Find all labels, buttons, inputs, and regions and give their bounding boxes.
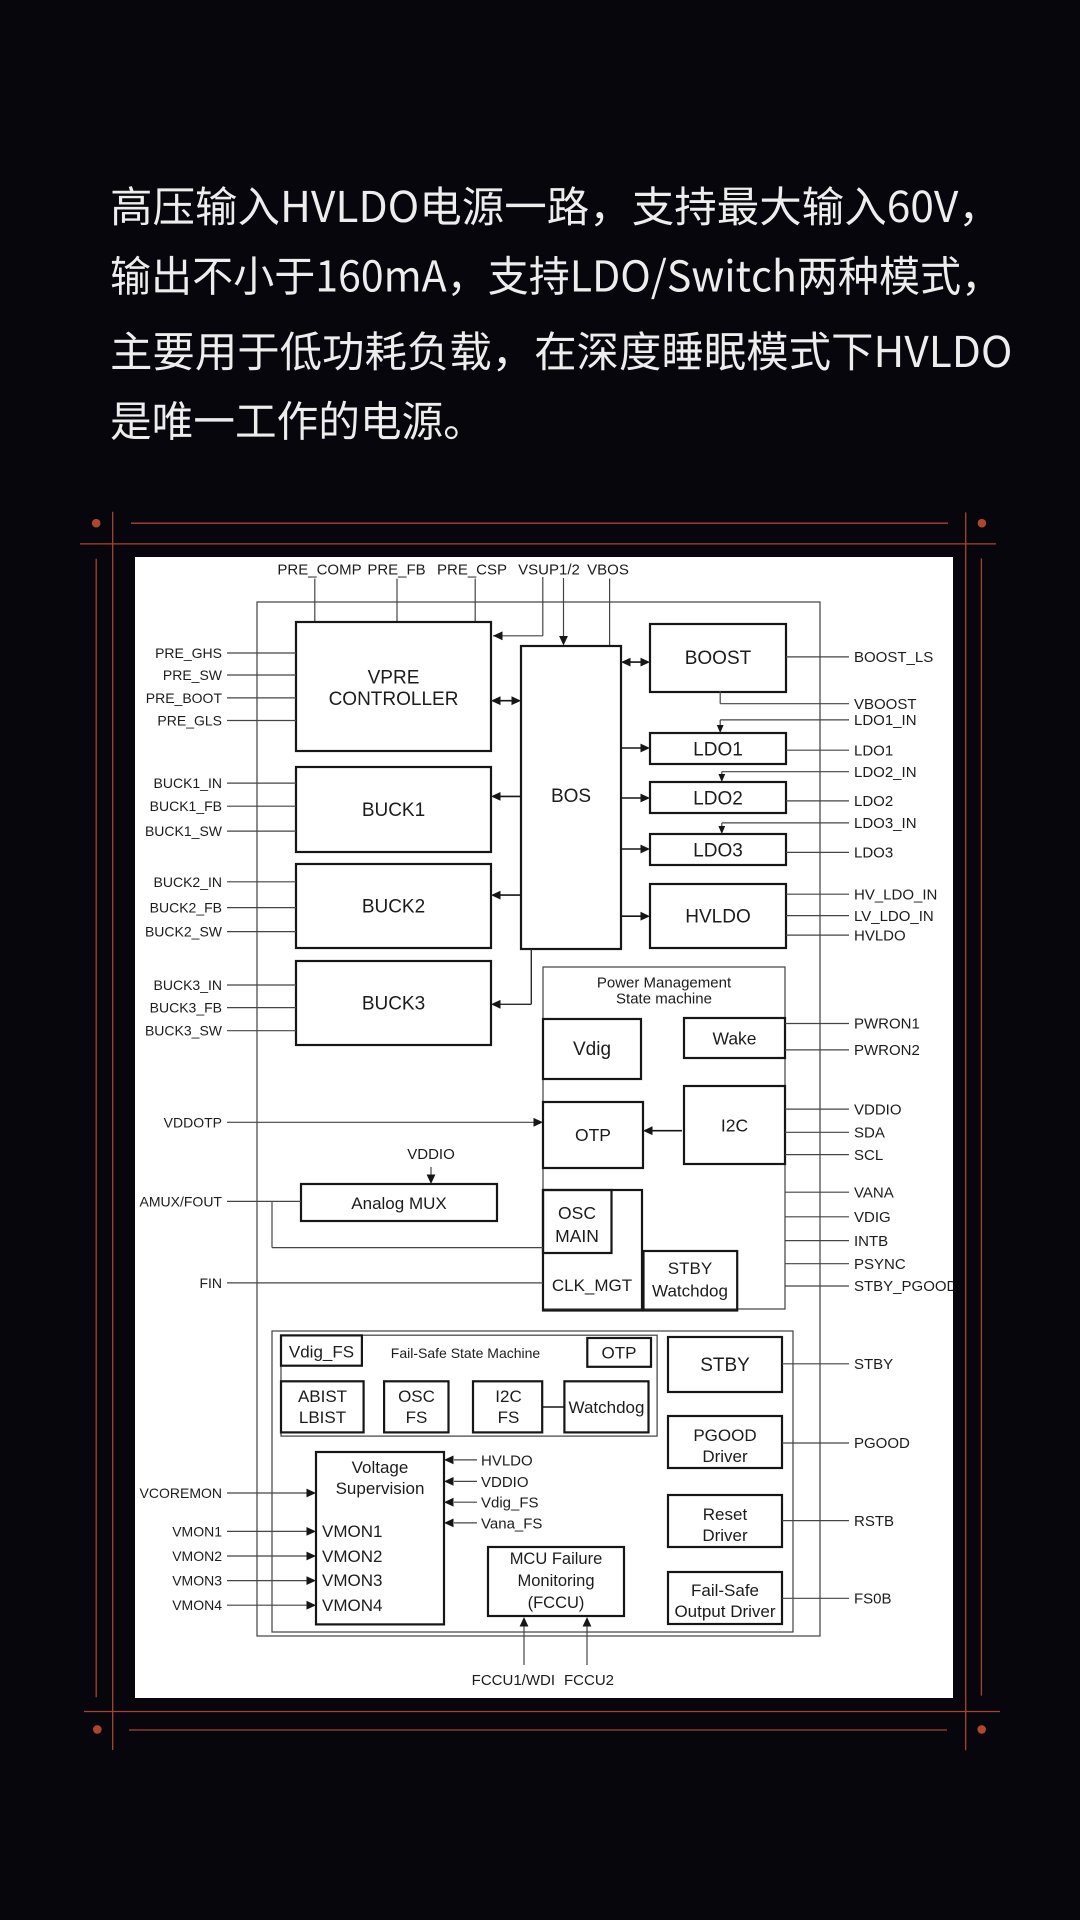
svg-text:Supervision: Supervision: [336, 1479, 425, 1498]
svg-text:LDO1: LDO1: [854, 742, 893, 759]
svg-text:I2C: I2C: [721, 1116, 748, 1136]
svg-text:VDDIO: VDDIO: [407, 1146, 455, 1163]
svg-text:Wake: Wake: [712, 1029, 756, 1049]
svg-text:LBIST: LBIST: [299, 1408, 346, 1427]
svg-text:RSTB: RSTB: [854, 1513, 894, 1530]
svg-text:VCOREMON: VCOREMON: [140, 1485, 222, 1501]
svg-text:VANA: VANA: [854, 1184, 894, 1201]
svg-text:BUCK2_IN: BUCK2_IN: [154, 874, 222, 890]
svg-text:Monitoring: Monitoring: [517, 1572, 594, 1590]
svg-text:FCCU2: FCCU2: [564, 1672, 614, 1689]
svg-text:BUCK2_FB: BUCK2_FB: [150, 900, 222, 916]
svg-text:FIN: FIN: [199, 1275, 222, 1291]
svg-text:Voltage: Voltage: [352, 1458, 409, 1477]
svg-text:STBY: STBY: [700, 1355, 750, 1376]
svg-text:Power Management: Power Management: [597, 974, 732, 991]
svg-text:Vdig_FS: Vdig_FS: [481, 1495, 539, 1512]
svg-text:Driver: Driver: [702, 1526, 748, 1545]
svg-text:FCCU1/WDI: FCCU1/WDI: [472, 1672, 555, 1689]
svg-text:PSYNC: PSYNC: [854, 1256, 906, 1273]
svg-text:LDO2: LDO2: [693, 789, 743, 810]
svg-text:PWRON1: PWRON1: [854, 1016, 920, 1033]
svg-text:HVLDO: HVLDO: [854, 927, 906, 944]
svg-text:VDDOTP: VDDOTP: [164, 1114, 222, 1130]
svg-text:BUCK1: BUCK1: [362, 800, 425, 821]
svg-text:FS0B: FS0B: [854, 1591, 892, 1608]
svg-text:VBOS: VBOS: [587, 562, 629, 579]
svg-text:LDO3_IN: LDO3_IN: [854, 815, 917, 832]
svg-text:LDO2_IN: LDO2_IN: [854, 764, 917, 781]
svg-text:(FCCU): (FCCU): [528, 1594, 585, 1612]
svg-text:HVLDO: HVLDO: [685, 907, 750, 928]
svg-text:SCL: SCL: [854, 1147, 883, 1164]
svg-text:STBY_PGOOD: STBY_PGOOD: [854, 1278, 953, 1295]
svg-text:BUCK3_SW: BUCK3_SW: [145, 1023, 223, 1039]
svg-text:LDO3: LDO3: [854, 845, 893, 862]
svg-text:VSUP1/2: VSUP1/2: [518, 562, 580, 579]
svg-text:HVLDO: HVLDO: [481, 1452, 533, 1469]
svg-text:LV_LDO_IN: LV_LDO_IN: [854, 908, 934, 925]
svg-text:PWRON2: PWRON2: [854, 1042, 920, 1059]
svg-text:VMON1: VMON1: [172, 1523, 222, 1539]
svg-text:VBOOST: VBOOST: [854, 696, 917, 713]
svg-text:Vana_FS: Vana_FS: [481, 1515, 542, 1532]
svg-text:BUCK1_SW: BUCK1_SW: [145, 823, 223, 839]
svg-text:OSC: OSC: [558, 1203, 596, 1223]
svg-text:Vdig_FS: Vdig_FS: [289, 1343, 354, 1362]
svg-text:BUCK1_IN: BUCK1_IN: [154, 775, 222, 791]
svg-text:AMUX/FOUT: AMUX/FOUT: [140, 1193, 223, 1209]
svg-text:VPRE: VPRE: [368, 668, 420, 689]
svg-text:Vdig: Vdig: [573, 1039, 611, 1060]
svg-text:Fail-Safe State Machine: Fail-Safe State Machine: [391, 1345, 541, 1361]
svg-text:FS: FS: [406, 1408, 428, 1427]
svg-text:VMON3: VMON3: [172, 1573, 222, 1589]
svg-text:CONTROLLER: CONTROLLER: [329, 689, 459, 710]
svg-text:PGOOD: PGOOD: [693, 1426, 756, 1445]
svg-text:VMON2: VMON2: [172, 1548, 222, 1564]
svg-text:I2C: I2C: [495, 1387, 521, 1406]
svg-text:BUCK2: BUCK2: [362, 897, 425, 918]
svg-text:LDO1: LDO1: [693, 740, 743, 761]
svg-text:BUCK3_IN: BUCK3_IN: [154, 977, 222, 993]
svg-text:BOS: BOS: [551, 786, 591, 807]
svg-text:Driver: Driver: [702, 1447, 748, 1466]
svg-text:OSC: OSC: [398, 1387, 435, 1406]
svg-text:LDO1_IN: LDO1_IN: [854, 712, 917, 729]
svg-text:PRE_FB: PRE_FB: [367, 562, 425, 579]
svg-text:VDIG: VDIG: [854, 1209, 891, 1226]
svg-text:State machine: State machine: [616, 991, 712, 1008]
svg-text:VMON3: VMON3: [322, 1571, 382, 1590]
svg-text:VMON1: VMON1: [322, 1522, 382, 1541]
svg-text:VMON4: VMON4: [172, 1597, 222, 1613]
svg-text:VMON4: VMON4: [322, 1596, 382, 1615]
svg-text:Analog MUX: Analog MUX: [351, 1194, 446, 1213]
svg-text:VDDIO: VDDIO: [481, 1474, 529, 1491]
svg-text:INTB: INTB: [854, 1233, 888, 1250]
svg-text:LDO2: LDO2: [854, 793, 893, 810]
svg-text:Fail-Safe: Fail-Safe: [691, 1581, 759, 1600]
svg-text:MAIN: MAIN: [555, 1226, 599, 1246]
svg-text:STBY: STBY: [854, 1356, 893, 1373]
svg-text:PRE_BOOT: PRE_BOOT: [146, 690, 223, 706]
svg-text:CLK_MGT: CLK_MGT: [552, 1276, 632, 1295]
svg-text:Watchdog: Watchdog: [652, 1282, 728, 1301]
svg-text:BUCK2_SW: BUCK2_SW: [145, 924, 223, 940]
svg-text:PRE_SW: PRE_SW: [163, 667, 223, 683]
svg-text:OTP: OTP: [602, 1344, 637, 1363]
svg-text:BUCK3_FB: BUCK3_FB: [150, 1000, 222, 1016]
svg-text:BOOST: BOOST: [685, 648, 752, 669]
svg-text:Watchdog: Watchdog: [569, 1398, 645, 1417]
svg-text:PGOOD: PGOOD: [854, 1435, 910, 1452]
svg-text:HV_LDO_IN: HV_LDO_IN: [854, 886, 937, 903]
svg-text:SDA: SDA: [854, 1125, 885, 1142]
svg-text:VDDIO: VDDIO: [854, 1101, 902, 1118]
svg-text:MCU Failure: MCU Failure: [510, 1550, 603, 1568]
svg-text:PRE_COMP: PRE_COMP: [277, 562, 361, 579]
svg-text:PRE_GLS: PRE_GLS: [157, 713, 222, 729]
svg-text:PRE_CSP: PRE_CSP: [437, 562, 507, 579]
svg-text:LDO3: LDO3: [693, 841, 743, 862]
svg-text:BUCK1_FB: BUCK1_FB: [150, 798, 222, 814]
svg-text:Reset: Reset: [703, 1505, 748, 1524]
svg-text:FS: FS: [498, 1408, 520, 1427]
svg-text:Output Driver: Output Driver: [674, 1602, 775, 1621]
svg-text:PRE_GHS: PRE_GHS: [155, 645, 222, 661]
svg-text:STBY: STBY: [668, 1259, 712, 1278]
svg-text:ABIST: ABIST: [298, 1387, 347, 1406]
svg-text:VMON2: VMON2: [322, 1547, 382, 1566]
svg-text:BOOST_LS: BOOST_LS: [854, 649, 933, 666]
svg-text:OTP: OTP: [575, 1125, 611, 1145]
svg-text:BUCK3: BUCK3: [362, 994, 425, 1015]
